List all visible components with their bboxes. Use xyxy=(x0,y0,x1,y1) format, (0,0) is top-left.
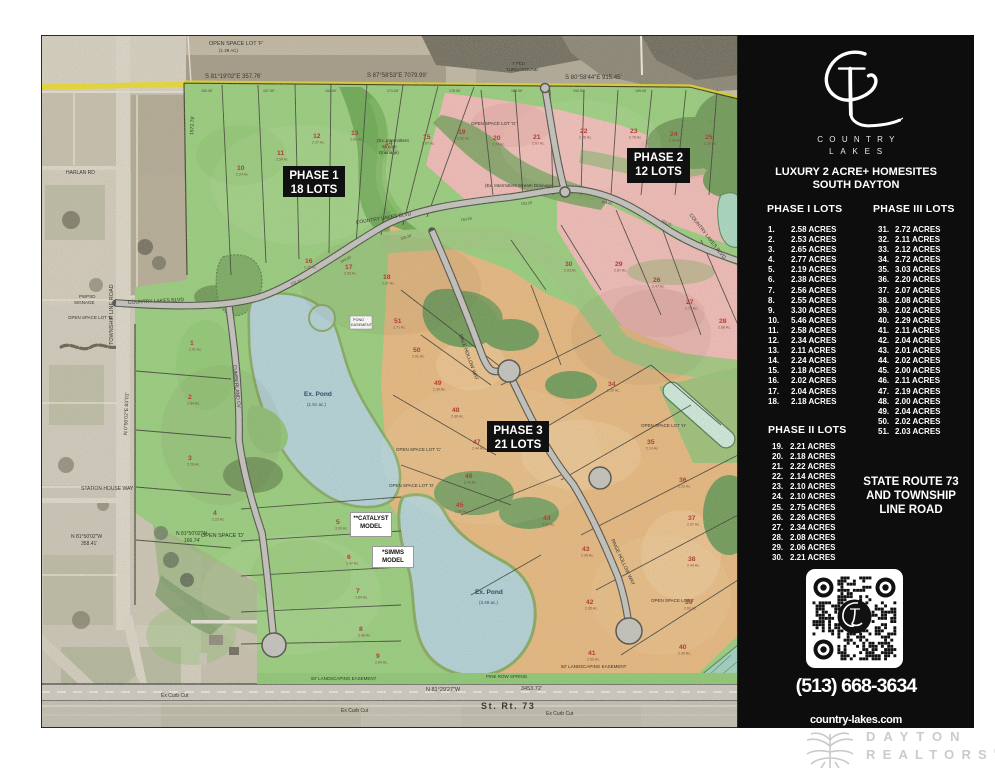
svg-text:St. Rt. 73: St. Rt. 73 xyxy=(481,701,536,711)
